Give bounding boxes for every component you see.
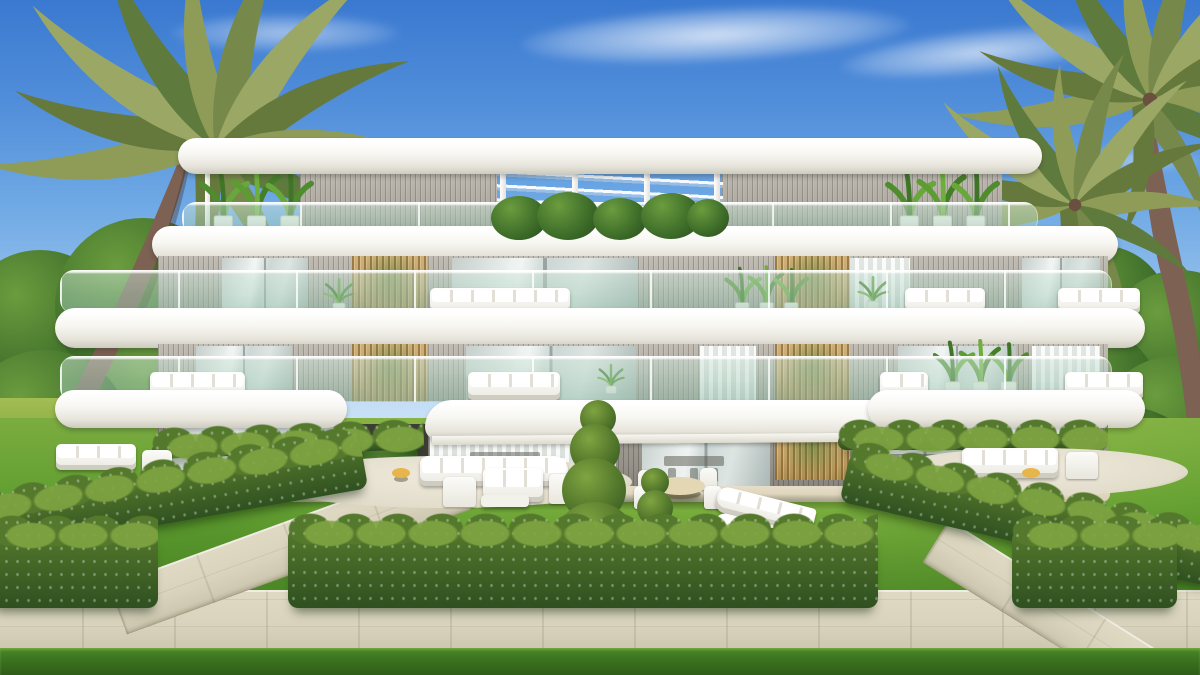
garden-armchair (443, 477, 476, 507)
garden (0, 0, 1200, 675)
garden-armchair-right-patio (1066, 452, 1098, 479)
foreground-grass-strip (0, 648, 1200, 675)
coffee-table (481, 495, 529, 507)
scene (0, 0, 1200, 675)
front-hedge-right (1012, 530, 1177, 608)
front-hedge-left (0, 530, 158, 608)
side-table-yellow (392, 468, 410, 478)
front-hedge-center (288, 528, 878, 608)
